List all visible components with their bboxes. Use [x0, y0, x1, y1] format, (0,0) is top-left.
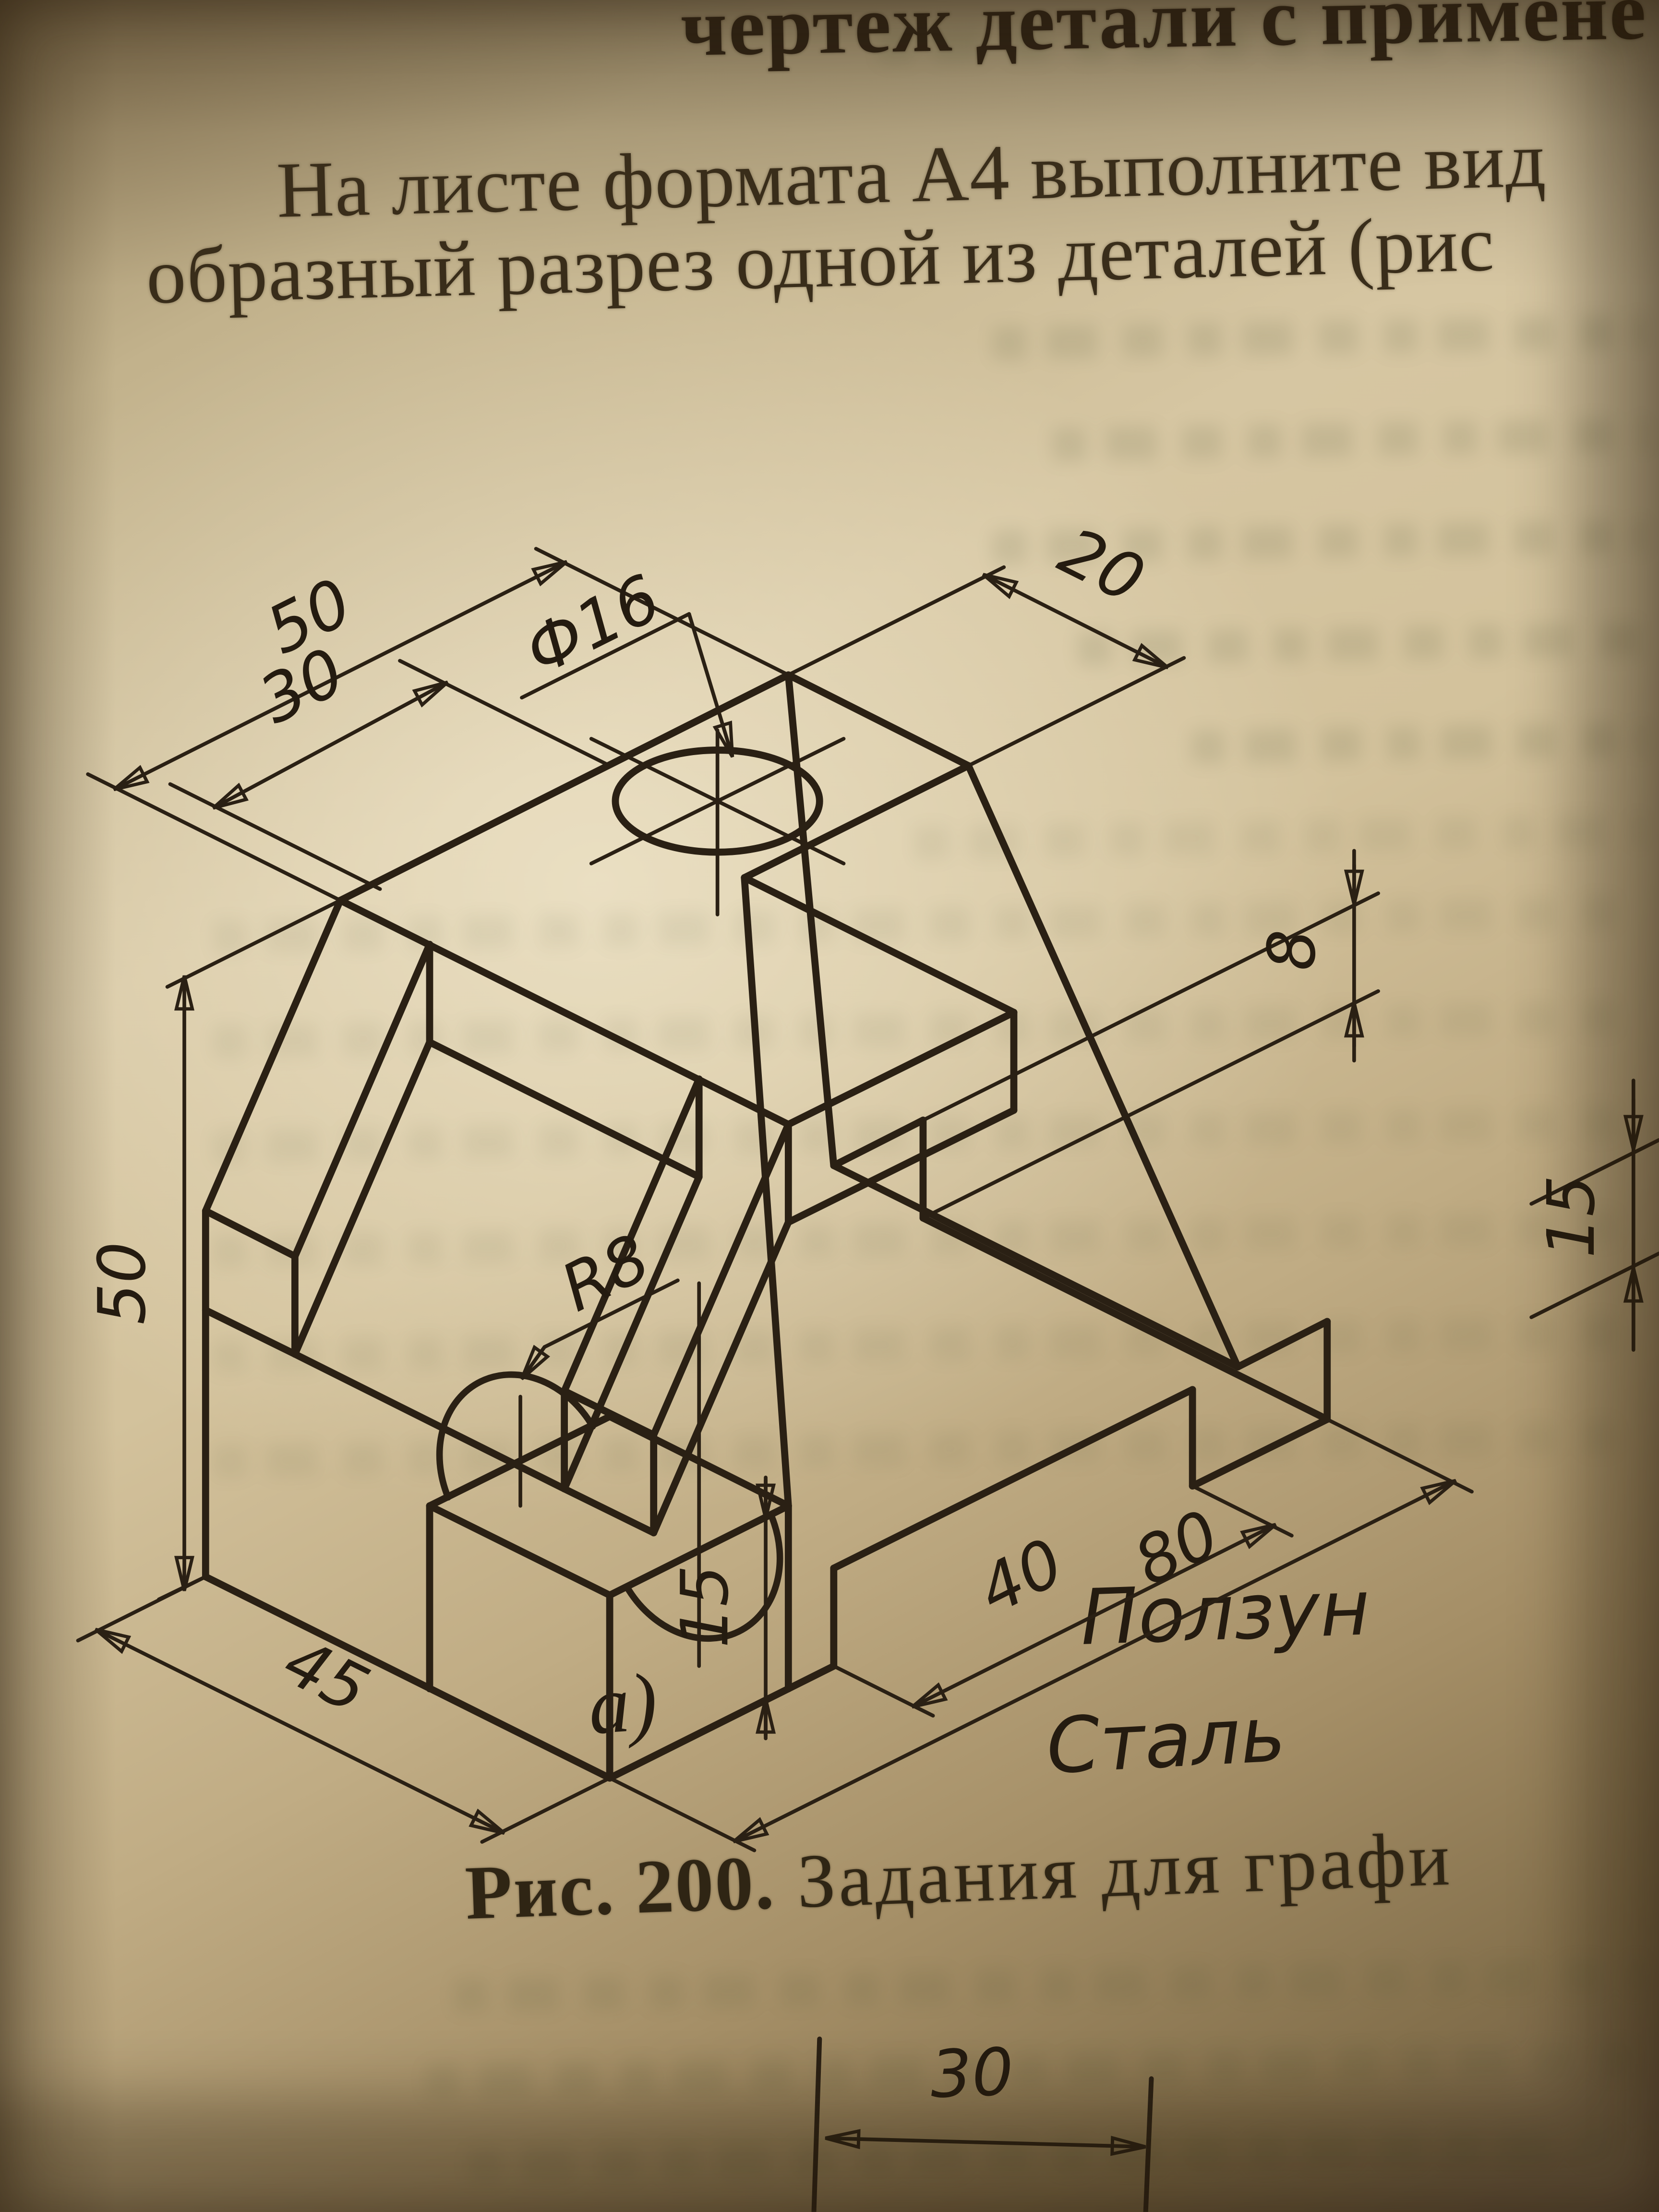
- dim-label-adjacent-15: 15: [1534, 1175, 1610, 1258]
- dim-label-height-50: 50: [84, 1242, 160, 1325]
- dim-label-30: 30: [248, 634, 356, 739]
- dim-height-50: 50: [84, 901, 340, 1599]
- book-page: чертеж детали с примене На листе формата…: [0, 0, 1659, 2212]
- dim-label-phi16: Ф16: [514, 560, 672, 690]
- next-figure-dim-30: 30: [814, 2034, 1151, 2212]
- dim-top-right-20: 20: [788, 513, 1184, 766]
- hole-callout: Ф16: [514, 560, 732, 754]
- isometric-part-drawing: 50 30 20 Ф16 50: [0, 0, 1659, 2212]
- dim-label-45: 45: [272, 1623, 380, 1729]
- dim-label-8: 8: [1254, 929, 1330, 971]
- r8-callout: R8: [523, 1220, 678, 1377]
- dim-recess-40: 40: [834, 1486, 1292, 1716]
- dim-step-8: 8: [923, 851, 1378, 1218]
- dim-label-20: 20: [1047, 513, 1155, 618]
- dim-label-slab-15: 15: [667, 1565, 743, 1648]
- dim-adjacent-15: 15: [1531, 1081, 1659, 1350]
- dim-label-40: 40: [967, 1525, 1075, 1630]
- photographed-textbook-page: { "page": { "header_fragment": "чертеж д…: [0, 0, 1659, 2212]
- dim-slab-15: 15: [667, 1478, 766, 1738]
- dim-label-80: 80: [1123, 1496, 1231, 1601]
- dim-label-bottom-30: 30: [929, 2034, 1015, 2113]
- dim-depth-45: 45: [78, 1577, 610, 1842]
